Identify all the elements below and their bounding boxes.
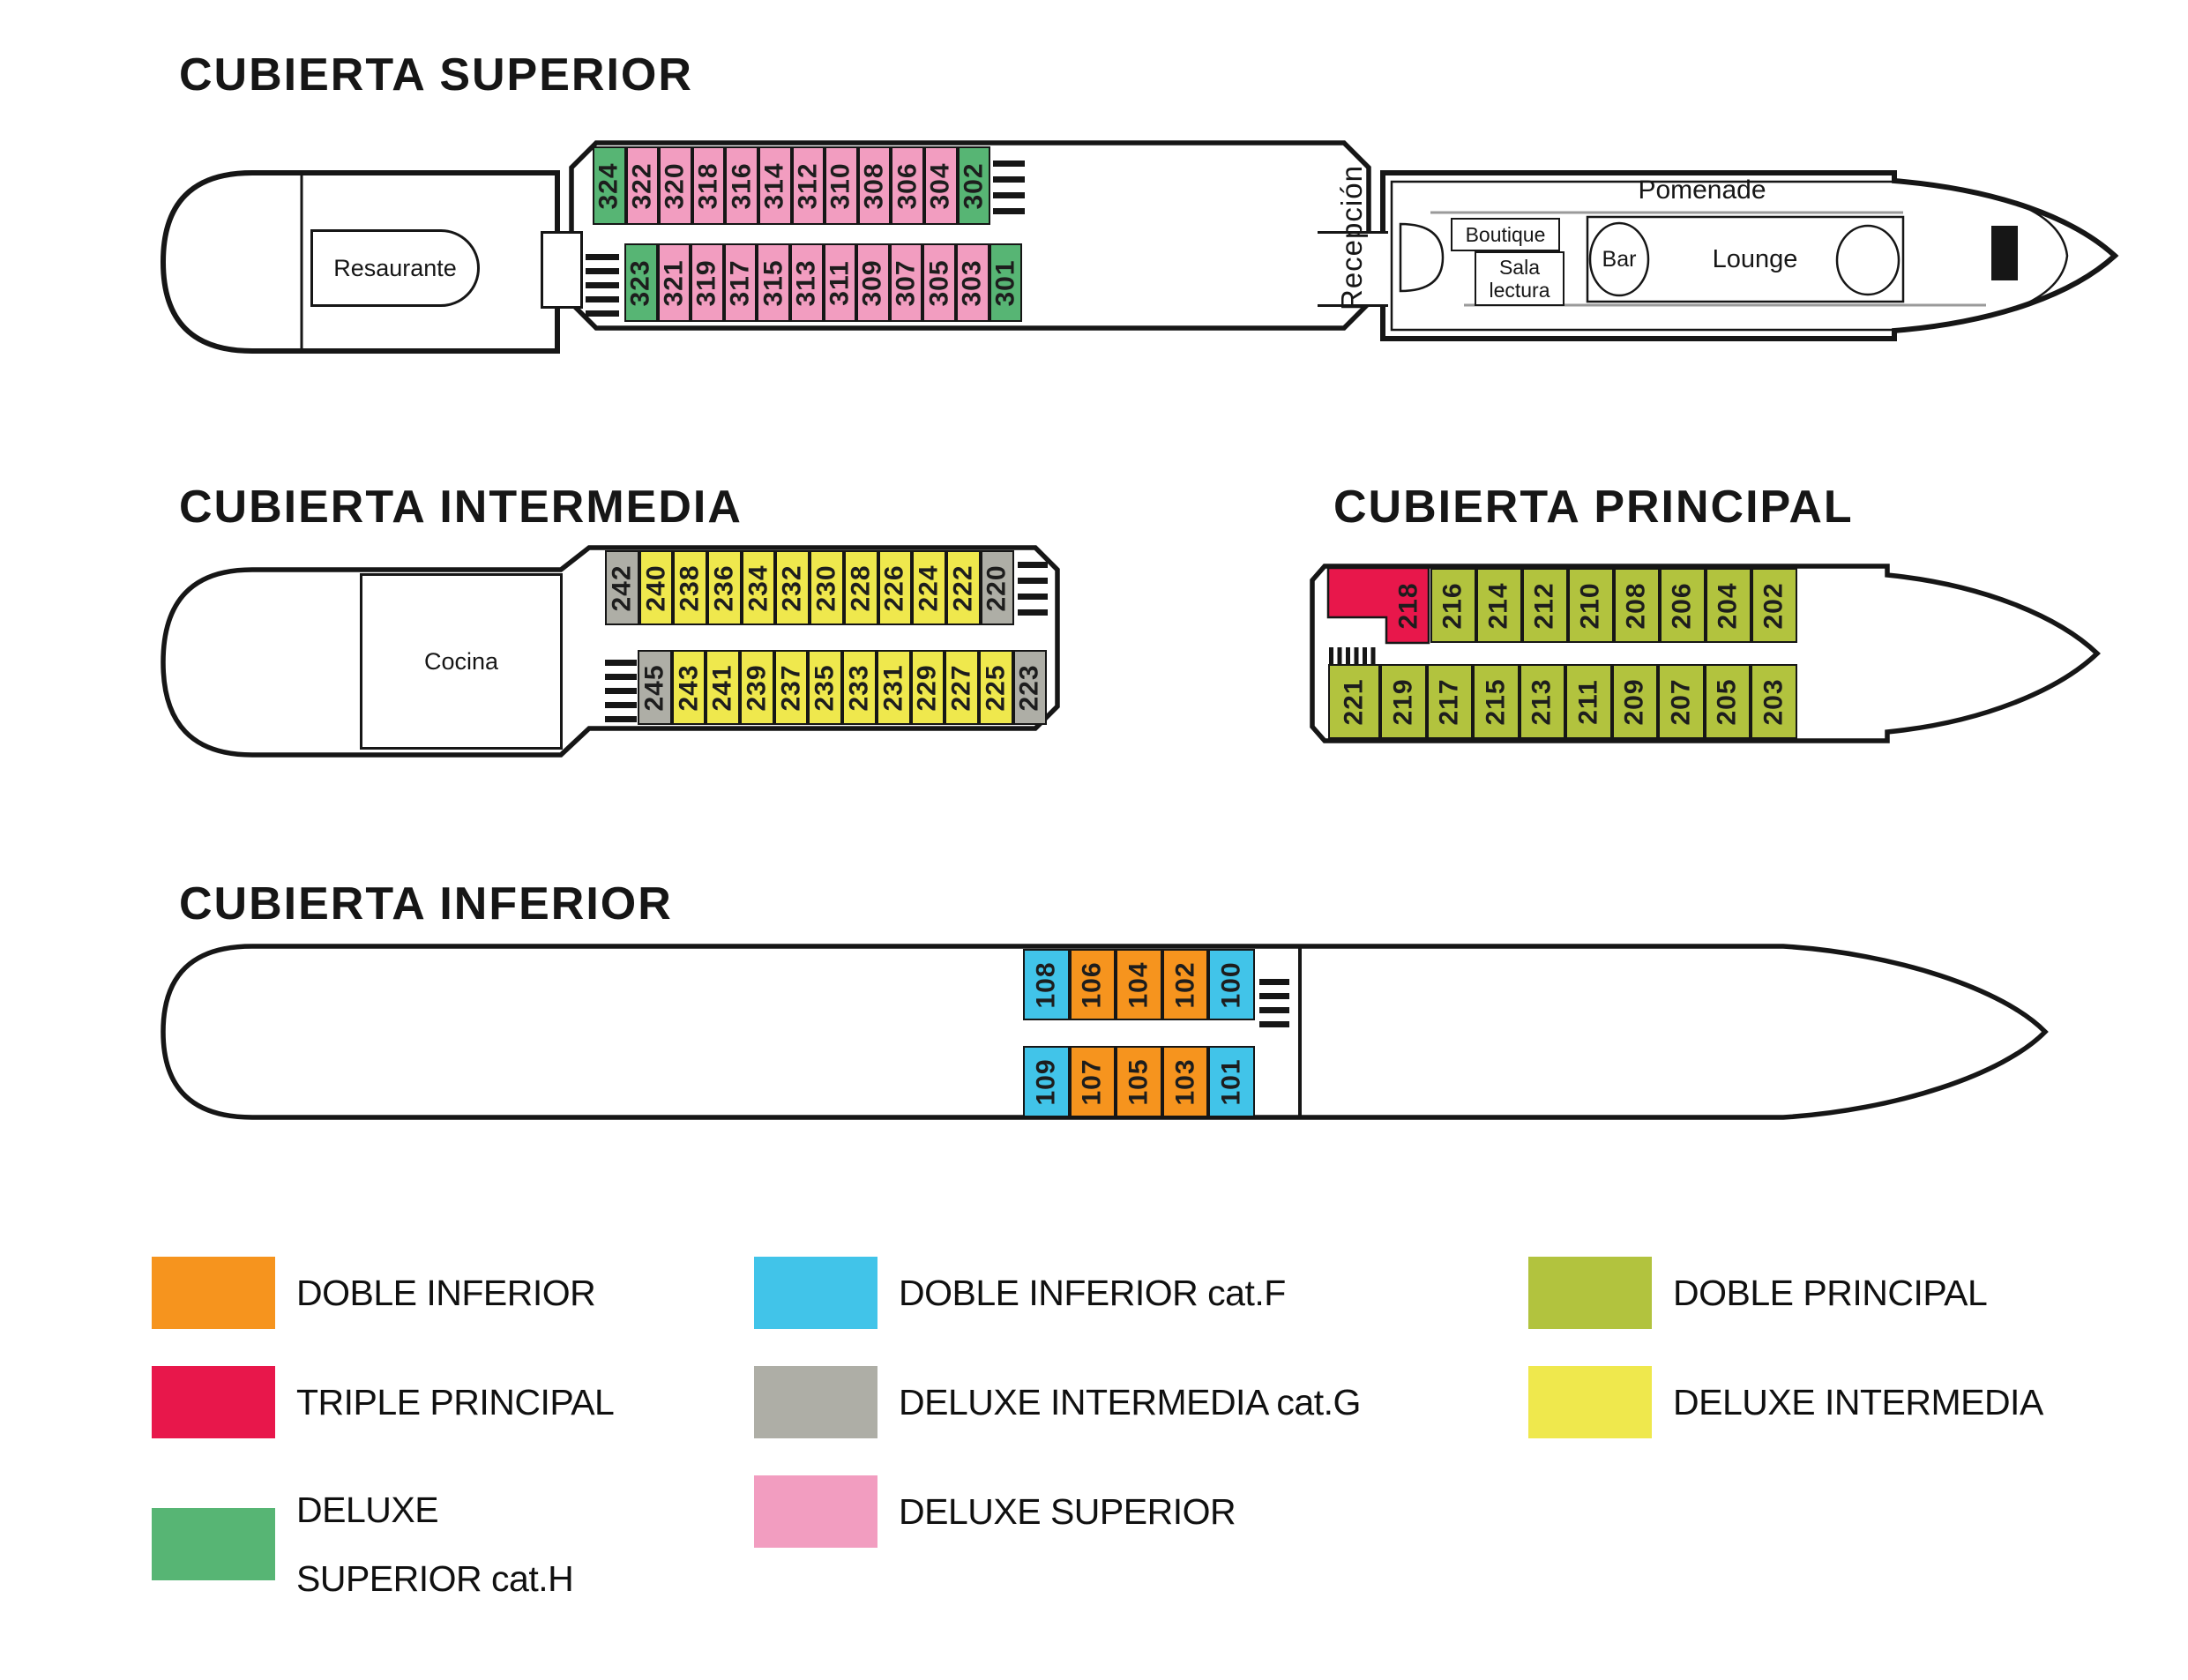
cabin-number: 211 [1573, 679, 1603, 724]
legend-label: DELUXESUPERIOR cat.H [296, 1475, 573, 1613]
reception-label: Recepción [1323, 150, 1381, 326]
cabin-307: 307 [890, 243, 923, 322]
cabin-number: 220 [982, 564, 1012, 611]
cabin-212: 212 [1522, 568, 1568, 643]
cabin-number: 304 [926, 162, 956, 209]
legend-label: DOBLE INFERIOR [296, 1258, 595, 1327]
cabin-211: 211 [1565, 664, 1612, 739]
legend-label: DOBLE INFERIOR cat.F [899, 1258, 1286, 1327]
cabin-number: 102 [1170, 961, 1200, 1008]
cabin-317: 317 [724, 243, 758, 322]
legend-item-orange: DOBLE INFERIOR [152, 1257, 614, 1329]
cabin-number: 318 [694, 162, 724, 209]
cabin-number: 231 [878, 664, 908, 711]
cabin-228: 228 [844, 550, 878, 625]
cabin-100: 100 [1208, 949, 1255, 1020]
cabin-312: 312 [792, 146, 825, 225]
cabin-number: 236 [709, 564, 739, 611]
legend-label: DELUXE INTERMEDIA [1673, 1368, 2043, 1437]
legend-swatch-olive [1528, 1257, 1652, 1329]
cabin-number: 322 [627, 162, 657, 209]
cabin-number: 108 [1031, 961, 1061, 1008]
superior-cabin-row-top: 324322320318316314312310308306304302 [593, 146, 990, 225]
cabin-223: 223 [1013, 650, 1048, 725]
cabin-number: 105 [1124, 1058, 1154, 1105]
legend-column-1: DOBLE INFERIORTRIPLE PRINCIPALDELUXESUPE… [152, 1257, 614, 1650]
cabin-318: 318 [692, 146, 726, 225]
cabin-243: 243 [672, 650, 706, 725]
legend-column-2: DOBLE INFERIOR cat.FDELUXE INTERMEDIA ca… [754, 1257, 1361, 1585]
deck-title-superior: CUBIERTA SUPERIOR [179, 49, 693, 101]
cabin-106: 106 [1070, 949, 1116, 1020]
cabin-number: 222 [948, 564, 978, 611]
cabin-number: 237 [776, 664, 806, 711]
cabin-number: 307 [892, 259, 922, 306]
cabin-107: 107 [1070, 1046, 1116, 1117]
cabin-number: 209 [1620, 678, 1650, 725]
cabin-number: 106 [1078, 961, 1108, 1008]
cabin-number: 233 [844, 664, 874, 711]
cabin-number: 301 [990, 259, 1020, 306]
cabin-324: 324 [593, 146, 626, 225]
legend-column-3: DOBLE PRINCIPALDELUXE INTERMEDIA [1528, 1257, 2043, 1475]
cabin-218-number: 218 [1394, 582, 1424, 629]
restaurant-room: Resaurante [310, 229, 480, 307]
cabin-218: 218 [1392, 571, 1427, 640]
legend-item-red: TRIPLE PRINCIPAL [152, 1366, 614, 1438]
cabin-108: 108 [1023, 949, 1070, 1020]
reading-room: Sala lectura [1475, 251, 1564, 306]
intermedia-cabin-row-bottom: 245243241239237235233231229227225223 [638, 650, 1047, 725]
cabin-number: 240 [641, 564, 671, 611]
cabin-number: 228 [846, 564, 876, 611]
cabin-233: 233 [842, 650, 877, 725]
cabin-224: 224 [912, 550, 946, 625]
cabin-number: 229 [913, 664, 943, 711]
cabin-number: 309 [858, 259, 888, 306]
cabin-number: 315 [758, 259, 788, 306]
principal-cabin-row-bottom: 221219217215213211209207205203 [1328, 664, 1797, 739]
cabin-306: 306 [891, 146, 924, 225]
cabin-214: 214 [1476, 568, 1522, 643]
cabin-103: 103 [1162, 1046, 1209, 1117]
superior-cabin-row-bottom: 323321319317315313311309307305303301 [624, 243, 1022, 322]
legend-swatch-red [152, 1366, 275, 1438]
cabin-320: 320 [659, 146, 692, 225]
reading-room-label-line1: Sala [1499, 256, 1540, 279]
cabin-number: 104 [1124, 961, 1154, 1008]
cabin-number: 204 [1714, 582, 1744, 629]
cabin-number: 232 [778, 564, 808, 611]
cabin-number: 230 [811, 564, 841, 611]
legend-swatch-cyan [754, 1257, 877, 1329]
cabin-number: 214 [1484, 582, 1514, 629]
inferior-cabin-row-bottom: 109107105103101 [1023, 1046, 1255, 1117]
cabin-304: 304 [924, 146, 958, 225]
cabin-205: 205 [1705, 664, 1751, 739]
legend-item-green: DELUXESUPERIOR cat.H [152, 1475, 614, 1613]
cabin-215: 215 [1473, 664, 1520, 739]
cabin-105: 105 [1116, 1046, 1162, 1117]
cabin-number: 234 [743, 564, 773, 611]
cabin-number: 216 [1438, 582, 1468, 629]
cabin-234: 234 [742, 550, 776, 625]
principal-cabin-row-top: 216214212210208206204202 [1430, 568, 1797, 643]
cabin-number: 303 [958, 259, 988, 306]
cabin-number: 206 [1668, 582, 1698, 629]
cabin-number: 242 [607, 564, 637, 611]
cabin-204: 204 [1706, 568, 1751, 643]
promenade-label: Pomenade [1579, 175, 1826, 206]
cabin-225: 225 [979, 650, 1013, 725]
cabin-219: 219 [1380, 664, 1427, 739]
legend-label: DELUXE INTERMEDIA cat.G [899, 1368, 1361, 1437]
legend-item-olive: DOBLE PRINCIPAL [1528, 1257, 2043, 1329]
cabin-number: 312 [793, 162, 823, 209]
cabin-227: 227 [945, 650, 979, 725]
legend-item-cyan: DOBLE INFERIOR cat.F [754, 1257, 1361, 1329]
legend-item-gray: DELUXE INTERMEDIA cat.G [754, 1366, 1361, 1438]
cabin-319: 319 [691, 243, 724, 322]
intermedia-cabin-row-top: 242240238236234232230228226224222220 [605, 550, 1014, 625]
cabin-226: 226 [878, 550, 913, 625]
legend-swatch-gray [754, 1366, 877, 1438]
cabin-number: 208 [1622, 582, 1652, 629]
cabin-315: 315 [757, 243, 790, 322]
cabin-number: 217 [1435, 678, 1465, 725]
cabin-241: 241 [706, 650, 740, 725]
cabin-number: 215 [1481, 678, 1511, 725]
cabin-213: 213 [1520, 664, 1566, 739]
cabin-number: 100 [1217, 961, 1247, 1008]
cabin-209: 209 [1612, 664, 1659, 739]
cabin-322: 322 [626, 146, 660, 225]
cabin-321: 321 [658, 243, 691, 322]
cabin-229: 229 [911, 650, 945, 725]
lounge-label: Lounge [1649, 243, 1861, 276]
cabin-217: 217 [1427, 664, 1474, 739]
cabin-245: 245 [638, 650, 672, 725]
cabin-216: 216 [1430, 568, 1476, 643]
cabin-number: 323 [626, 259, 656, 306]
cabin-221: 221 [1328, 664, 1380, 739]
cabin-104: 104 [1116, 949, 1162, 1020]
deck-title-intermedia: CUBIERTA INTERMEDIA [179, 481, 743, 534]
legend-item-yellow: DELUXE INTERMEDIA [1528, 1366, 2043, 1438]
cabin-230: 230 [810, 550, 844, 625]
cabin-number: 203 [1759, 678, 1788, 725]
restaurant-label: Resaurante [333, 255, 457, 282]
cabin-240: 240 [639, 550, 674, 625]
cabin-number: 321 [659, 259, 689, 306]
cabin-number: 101 [1217, 1058, 1247, 1105]
cabin-302: 302 [958, 146, 991, 225]
cabin-number: 212 [1530, 582, 1560, 629]
deck-title-inferior: CUBIERTA INFERIOR [179, 877, 673, 930]
cabin-311: 311 [824, 243, 857, 322]
legend-swatch-orange [152, 1257, 275, 1329]
cabin-number: 221 [1340, 678, 1370, 725]
cabin-number: 305 [924, 259, 954, 306]
cabin-208: 208 [1614, 568, 1660, 643]
cabin-number: 239 [742, 664, 772, 711]
reading-room-label-line2: lectura [1489, 279, 1550, 302]
cabin-301: 301 [989, 243, 1023, 322]
cabin-number: 207 [1666, 678, 1696, 725]
cabin-316: 316 [725, 146, 758, 225]
cabin-number: 313 [792, 259, 822, 306]
cabin-102: 102 [1162, 949, 1209, 1020]
bow-marker [1991, 226, 2018, 280]
cabin-236: 236 [707, 550, 742, 625]
cabin-number: 224 [915, 564, 945, 611]
kitchen-label: Cocina [424, 648, 498, 676]
legend-swatch-green [152, 1508, 275, 1580]
legend-label: DELUXE SUPERIOR [899, 1477, 1236, 1546]
cabin-222: 222 [946, 550, 981, 625]
boutique-room: Boutique [1451, 218, 1560, 251]
cabin-number: 235 [810, 664, 840, 711]
cabin-109: 109 [1023, 1046, 1070, 1117]
cabin-number: 238 [676, 564, 706, 611]
cabin-305: 305 [922, 243, 956, 322]
cabin-number: 302 [959, 162, 989, 209]
cabin-235: 235 [808, 650, 842, 725]
deck-title-principal: CUBIERTA PRINCIPAL [1333, 481, 1854, 534]
cabin-number: 310 [826, 162, 856, 209]
cabin-313: 313 [790, 243, 824, 322]
cabin-number: 205 [1713, 678, 1743, 725]
cabin-number: 223 [1015, 664, 1045, 711]
cabin-232: 232 [775, 550, 810, 625]
cabin-237: 237 [774, 650, 809, 725]
cabin-101: 101 [1208, 1046, 1255, 1117]
cabin-number: 109 [1031, 1058, 1061, 1105]
cabin-number: 316 [727, 162, 757, 209]
cabin-number: 306 [892, 162, 922, 209]
cabin-202: 202 [1751, 568, 1797, 643]
cabin-239: 239 [740, 650, 774, 725]
legend-item-pink: DELUXE SUPERIOR [754, 1475, 1361, 1548]
cabin-number: 103 [1170, 1058, 1200, 1105]
cabin-number: 107 [1078, 1058, 1108, 1105]
cabin-number: 225 [981, 664, 1011, 711]
cabin-number: 219 [1388, 678, 1418, 725]
cabin-number: 227 [947, 664, 977, 711]
cabin-number: 241 [708, 664, 738, 711]
cabin-323: 323 [624, 243, 658, 322]
inferior-cabin-row-top: 108106104102100 [1023, 949, 1255, 1020]
cabin-number: 314 [760, 162, 790, 209]
cabin-number: 320 [661, 162, 691, 209]
cabin-number: 226 [880, 564, 910, 611]
cabin-210: 210 [1568, 568, 1614, 643]
cabin-308: 308 [858, 146, 892, 225]
cabin-303: 303 [956, 243, 989, 322]
legend-label: TRIPLE PRINCIPAL [296, 1368, 614, 1437]
cabin-220: 220 [981, 550, 1015, 625]
cabin-number: 213 [1527, 678, 1557, 725]
cabin-314: 314 [758, 146, 792, 225]
cabin-231: 231 [877, 650, 911, 725]
cabin-number: 245 [639, 664, 669, 711]
cabin-238: 238 [673, 550, 707, 625]
legend-label: DOBLE PRINCIPAL [1673, 1258, 1987, 1327]
cabin-number: 202 [1759, 582, 1789, 629]
cabin-number: 324 [594, 162, 624, 209]
cabin-206: 206 [1660, 568, 1706, 643]
cabin-207: 207 [1658, 664, 1705, 739]
cabin-number: 243 [674, 664, 704, 711]
legend-swatch-pink [754, 1475, 877, 1548]
cabin-203: 203 [1751, 664, 1797, 739]
deck-plan-page: CUBIERTA SUPERIOR CUBIERTA INTERMEDIA CU… [0, 0, 2188, 1680]
cabin-number: 317 [726, 259, 756, 306]
cabin-242: 242 [605, 550, 639, 625]
cabin-number: 210 [1576, 582, 1606, 629]
bar-label: Bar [1591, 223, 1647, 295]
cabin-310: 310 [825, 146, 858, 225]
cabin-number: 308 [860, 162, 890, 209]
cabin-number: 311 [825, 260, 855, 305]
kitchen-room: Cocina [360, 573, 563, 750]
cabin-309: 309 [856, 243, 890, 322]
cabin-number: 319 [692, 259, 722, 306]
stern-passage-connector [541, 231, 583, 309]
legend-swatch-yellow [1528, 1366, 1652, 1438]
